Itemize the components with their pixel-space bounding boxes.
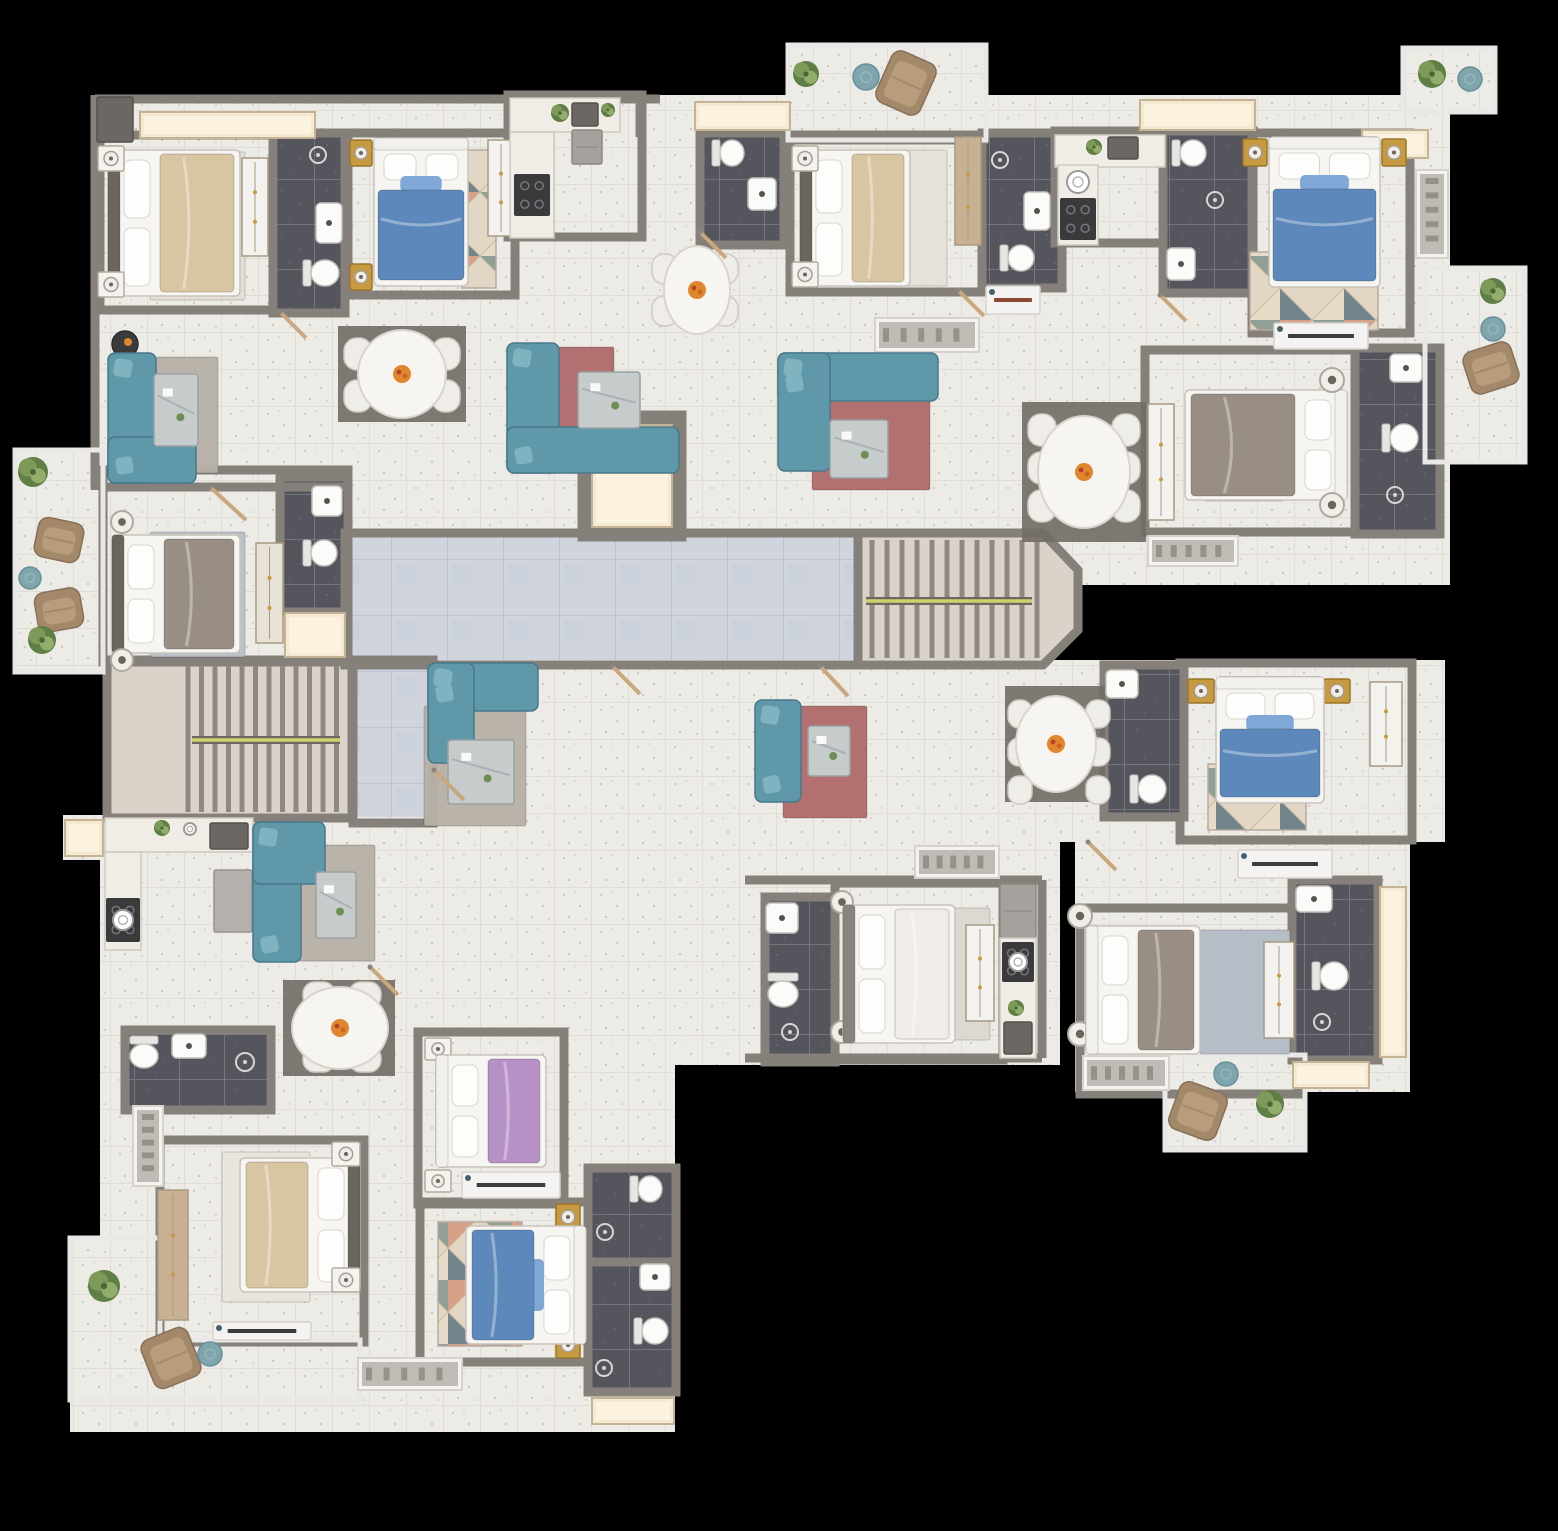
floor-plan [0,0,1558,1531]
pouf-balcony-f [198,1342,222,1366]
toilet [1382,424,1418,452]
dresser-c2 [1148,404,1174,520]
dining-set-d [1005,686,1110,804]
cooktop-a [514,174,550,216]
kitchen-sink-f [210,823,248,849]
nightstand-gold [1243,139,1267,166]
plant-kitchen [601,103,615,117]
display-cabinet-f [133,1106,163,1186]
window-sill-a [140,112,315,138]
armchair-terrace [32,516,85,565]
tv-console-d [1238,850,1332,878]
sink [640,1264,670,1290]
plate-lobby [353,660,433,823]
dining-set-a [338,326,466,422]
toilet [1000,245,1034,271]
plate-corridor [345,533,858,665]
display-cabinet-f2 [358,1358,462,1390]
wardrobe-d [1370,682,1402,766]
tv-console-g [462,1172,560,1198]
cabinet-topleft [97,97,133,142]
coffee-table-e [808,726,850,776]
plant-balcony-c [1480,278,1506,304]
display-cabinet-d2 [1083,1056,1169,1090]
tv-bar-f [213,1322,311,1340]
kitchen-island-f [214,870,252,932]
bedside-lamp [1068,904,1092,928]
fridge-a [572,130,602,164]
display-cabinet-c2 [1148,536,1238,566]
bed-beige-a1 [108,150,240,296]
nightstand-gold [1188,679,1214,703]
table-terrace-topright [1458,67,1482,91]
bed-gray-c2 [1185,390,1347,500]
bedside-lamp [111,649,133,671]
wardrobe-b [955,137,981,245]
dresser-e [966,925,994,1021]
plant-balcony-b [793,61,819,87]
pouf-balcony-d [1214,1062,1238,1086]
window-sill-d-south [1293,1062,1369,1088]
coffee-table-a2 [578,372,640,428]
bed-purple-g [436,1055,546,1167]
tv-console-leftmid [256,543,283,643]
pot-f [113,910,133,930]
plant-kitchen-e [1008,1000,1024,1016]
dining-set-f [283,980,395,1076]
nightstand [792,146,818,171]
nightstand-gold [1324,679,1350,703]
bedside-lamp [111,511,133,533]
toilet [1130,775,1166,803]
wardrobe-f [158,1190,188,1320]
toilet [768,973,798,1007]
sink [1390,354,1422,382]
nightstand [792,262,818,287]
dining-set-b [652,246,738,334]
sink [1106,670,1138,698]
display-cabinet-b [875,318,979,352]
plant-kitchen-f [154,820,170,836]
window-sill-f [65,820,103,856]
coffee-table-f [316,872,356,938]
console-art-b [986,286,1040,314]
plant-terrace [28,626,56,654]
pot-e [1009,953,1027,971]
window-sill-b [695,102,790,130]
plant-balcony-f [88,1270,120,1302]
plant-kitchen [551,104,569,122]
display-cabinet-c [1416,170,1448,258]
nightstand [98,146,124,171]
window-sill-d-east [1380,887,1406,1057]
coffee-table-b [830,420,888,478]
coffee-table-a [154,374,198,446]
bed-blue-d [1216,677,1324,803]
plant-balcony-d [1256,1090,1284,1118]
nightstand [332,1268,360,1292]
nightstand-gold [350,264,372,290]
plant-terrace [18,457,48,487]
toilet [712,140,744,166]
kitchen-sink-c [1067,171,1089,193]
sink [172,1034,206,1058]
toilet [1312,962,1348,990]
bedside-lamp [1320,493,1344,517]
toilet [1172,140,1206,166]
sink [1296,886,1332,912]
toilet [303,540,337,566]
dresser-a1 [242,158,268,256]
jar-f [184,823,196,835]
bed-blue-c [1269,137,1380,287]
bedside-lamp [1320,368,1344,392]
fridge-e [1000,884,1036,938]
bed-white-e [843,905,955,1043]
bed-blue-g2 [466,1226,586,1344]
bed-gray-d2 [1086,926,1200,1054]
display-cabinet-e [915,846,999,878]
rug-balcony-c [1481,317,1505,341]
sofa-living-e [755,700,801,802]
sink [766,903,798,933]
counter-dark-c [1108,137,1138,159]
kitchen-sink-a [572,103,598,126]
toilet [303,260,339,286]
toilet [130,1036,158,1068]
plant-kitchen-c [1086,139,1102,155]
sink [312,486,342,516]
nightstand-gold [350,140,372,166]
window-sill-g [592,1398,674,1424]
tv-console-c [1274,323,1368,349]
toilet [630,1176,662,1202]
bed-blue-a2 [374,138,468,286]
console-d2 [1264,942,1294,1038]
nightstand [332,1142,360,1166]
dining-set-c [1022,402,1146,542]
toilet [634,1318,668,1344]
floor-plan-svg [0,0,1558,1531]
cooktop-c [1060,198,1096,240]
nightstand [425,1170,451,1192]
bed-gray-leftmid [112,535,240,653]
window-sill-leftmid [285,613,345,657]
nightstand-gold [1382,139,1406,166]
sink [748,178,776,210]
window-sill-c [1140,100,1255,130]
plant-terrace-topright [1418,60,1446,88]
sink [1167,248,1195,280]
table-balcony-b [853,64,879,90]
sink [316,203,342,243]
sink [1024,192,1050,230]
nightstand [98,272,124,297]
counter-dark-e [1004,1022,1032,1054]
pouf-terrace [19,567,41,589]
